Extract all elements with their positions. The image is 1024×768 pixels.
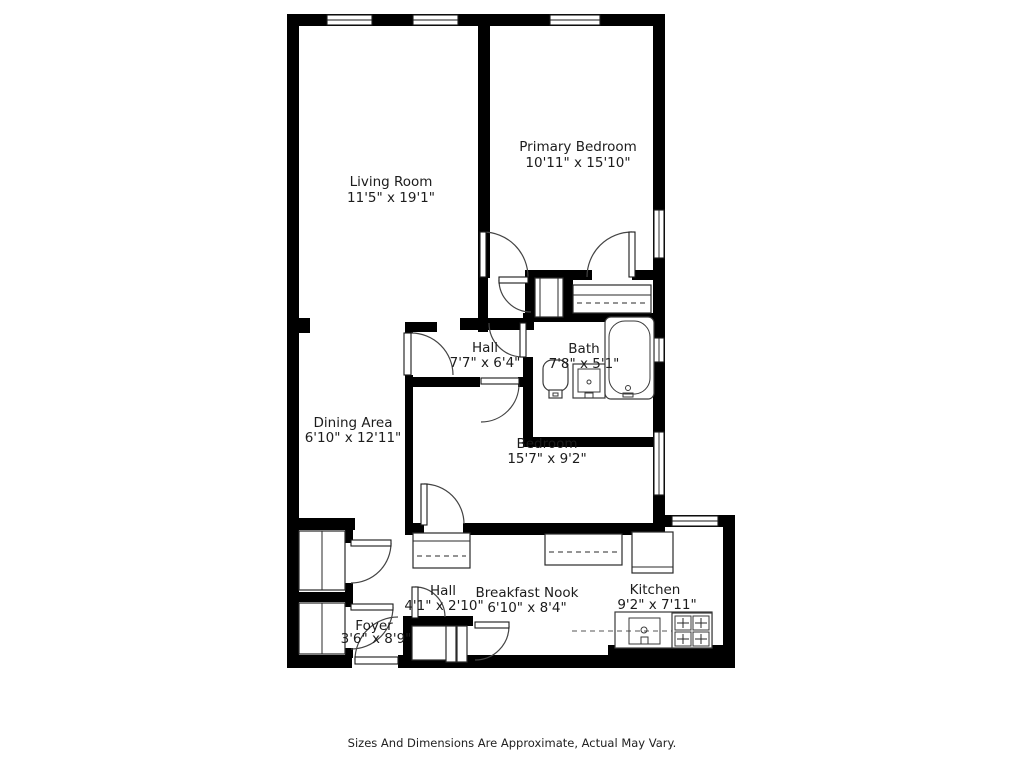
dims-primary-bedroom: 10'11" x 15'10" xyxy=(525,155,630,171)
bedroom-closet xyxy=(413,533,470,568)
floor-plan-page: Living Room 11'5" x 19'1" Primary Bedroo… xyxy=(0,0,1024,768)
dims-living-room: 11'5" x 19'1" xyxy=(347,190,435,206)
label-living-room: Living Room xyxy=(350,174,433,190)
door xyxy=(475,622,509,660)
floor-plan-drawing: Living Room 11'5" x 19'1" Primary Bedroo… xyxy=(0,0,1024,768)
label-dining-area: Dining Area xyxy=(314,415,393,431)
bifold-door-leaf xyxy=(446,626,456,662)
wall-left xyxy=(287,14,299,668)
breakfast-closet xyxy=(545,534,622,565)
dims-breakfast-nook: 6'10" x 8'4" xyxy=(487,600,566,616)
bifold-door-leaf xyxy=(457,626,467,662)
dims-bath: 7'8" x 5'1" xyxy=(549,356,620,372)
dims-kitchen: 9'2" x 7'11" xyxy=(617,597,696,613)
window xyxy=(654,210,664,258)
door xyxy=(404,333,453,375)
dims-foyer: 3'6" x 8'9" xyxy=(341,631,412,647)
closet-small xyxy=(535,278,563,317)
closet-wide xyxy=(573,285,651,313)
window xyxy=(654,338,664,362)
dims-hall-lower: 4'1" x 2'10" xyxy=(404,598,483,614)
label-kitchen: Kitchen xyxy=(630,582,681,598)
label-hall-lower: Hall xyxy=(430,583,456,599)
window xyxy=(413,15,458,25)
label-hall-upper: Hall xyxy=(472,340,498,356)
wall-bottom-left xyxy=(287,655,352,668)
stove-icon xyxy=(672,613,712,648)
door xyxy=(587,232,635,277)
window xyxy=(327,15,372,25)
dims-dining-area: 6'10" x 12'11" xyxy=(305,430,402,446)
label-breakfast-nook: Breakfast Nook xyxy=(476,585,579,601)
window xyxy=(654,432,664,495)
door xyxy=(351,540,391,583)
window xyxy=(550,15,600,25)
wall-foyer-top xyxy=(287,518,355,530)
label-bath: Bath xyxy=(568,341,599,357)
label-bedroom: Bedroom xyxy=(516,436,577,452)
door xyxy=(421,484,464,525)
disclaimer-text: Sizes And Dimensions Are Approximate, Ac… xyxy=(348,736,677,750)
door xyxy=(481,378,519,422)
dims-hall-upper: 7'7" x 6'4" xyxy=(450,355,521,371)
wall-left-stub xyxy=(287,318,310,333)
dims-bedroom: 15'7" x 9'2" xyxy=(507,451,586,467)
hall-closet xyxy=(412,626,448,660)
label-primary-bedroom: Primary Bedroom xyxy=(519,139,637,155)
kitchen-fixtures xyxy=(572,612,712,648)
window xyxy=(672,516,718,526)
